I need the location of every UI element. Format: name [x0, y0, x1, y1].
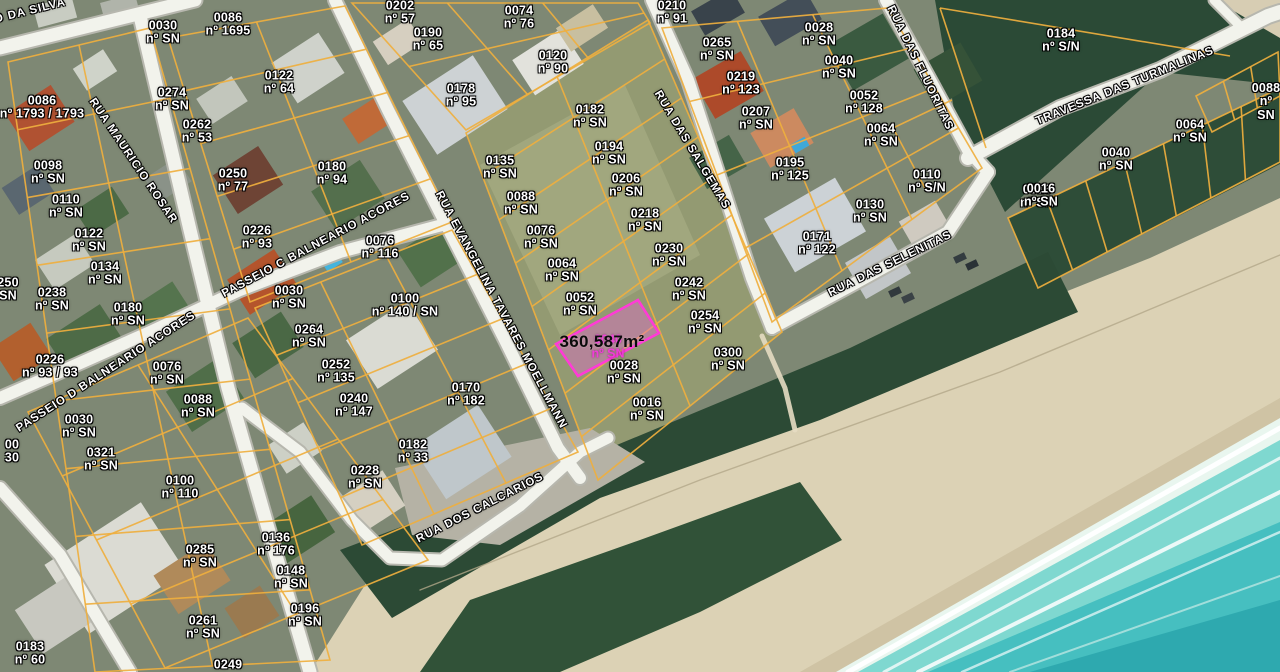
parcel-label: 0086 nº 1793 / 1793 — [0, 95, 84, 122]
parcel-label: 0030 nº SN — [62, 414, 96, 441]
parcel-label: 0135 nº SN — [483, 155, 517, 182]
parcel-label: 0196 nº SN — [288, 603, 322, 630]
parcel-label: 0180 nº SN — [111, 302, 145, 329]
parcel-label: 0134 nº SN — [88, 261, 122, 288]
parcel-label: 0238 nº SN — [35, 287, 69, 314]
parcel-label: 0016 nº SN — [1024, 183, 1058, 210]
parcel-label: 0052 nº 128 — [845, 90, 883, 117]
parcel-label: 0252 nº 135 — [317, 359, 355, 386]
parcel-label: 0264 nº SN — [292, 324, 326, 351]
parcel-label: 0122 nº SN — [72, 228, 106, 255]
street-label: RUA MAURICIO ROSAR — [86, 96, 179, 226]
parcel-label: 0016 nº SN — [630, 397, 664, 424]
parcel-label: 0195 nº 125 — [771, 157, 809, 184]
parcel-label: 0100 nº 140 / SN — [372, 293, 439, 320]
parcel-label: 0240 nº 147 — [335, 393, 373, 420]
parcel-label: 0184 nº S/N — [1042, 28, 1080, 55]
parcel-label: 0180 nº 94 — [317, 161, 348, 188]
parcel-label: 250 SN — [0, 277, 19, 304]
street-label: TRAVESSA DAS TURMALINAS — [1034, 45, 1216, 128]
parcel-label: 0028 nº SN — [607, 360, 641, 387]
parcel-label: 0206 nº SN — [609, 173, 643, 200]
parcel-label: 0254 nº SN — [688, 310, 722, 337]
parcel-label: 0074 nº 76 — [504, 5, 535, 32]
parcel-label: 0226 nº 93 / 93 — [22, 354, 78, 381]
parcel-label: 0098 nº SN — [31, 160, 65, 187]
parcel-label: 0028 nº SN — [802, 22, 836, 49]
area-measurement-label: 360,587m² — [560, 332, 645, 352]
parcel-label: 0228 nº SN — [348, 465, 382, 492]
parcel-label: 0122 nº 64 — [264, 70, 295, 97]
parcel-label: 0076 nº SN — [524, 225, 558, 252]
parcel-label: 0086 nº 1695 — [206, 12, 251, 39]
parcel-label: 0040 nº SN — [822, 55, 856, 82]
parcel-label: 0088 nº SN — [504, 191, 538, 218]
parcel-label: 0170 nº 182 — [447, 382, 485, 409]
parcel-label: 0064 nº SN — [864, 123, 898, 150]
parcel-label: 0262 nº 53 — [182, 119, 213, 146]
parcel-label: 0030 nº SN — [272, 285, 306, 312]
street-label: RUA DAS SALGEMAS — [652, 88, 733, 211]
parcel-label: 0190 nº 65 — [413, 27, 444, 54]
parcel-label: 0300 nº SN — [711, 347, 745, 374]
parcel-label: 0250 nº 77 — [218, 168, 249, 195]
parcel-label: 0076 nº SN — [150, 361, 184, 388]
parcel-label: 0182 nº SN — [573, 104, 607, 131]
parcel-label: 0219 nº 123 — [722, 71, 760, 98]
street-label: O DA SILVA — [0, 0, 67, 26]
parcel-label: 0210 nº 91 — [657, 0, 688, 26]
parcel-label: 0285 nº SN — [183, 544, 217, 571]
map-labels-layer: 0040 nº SN 360,587m² 0030 nº SN0086 nº 1… — [0, 0, 1280, 672]
parcel-label: 0064 nº SN — [545, 258, 579, 285]
parcel-label: 0182 nº 33 — [398, 439, 429, 466]
parcel-label: 0274 nº SN — [155, 87, 189, 114]
parcel-label: 0178 nº 95 — [446, 83, 477, 110]
parcel-label: 0076 nº 116 — [361, 235, 398, 262]
parcel-label: 0088 nº SN — [181, 394, 215, 421]
parcel-label: 0218 nº SN — [628, 208, 662, 235]
parcel-label: 0321 nº SN — [84, 447, 118, 474]
parcel-label: 0265 nº SN — [700, 37, 734, 64]
parcel-label: 00 30 — [5, 439, 19, 466]
parcel-label: 0120 nº 90 — [538, 50, 569, 77]
parcel-label: 0171 nº 122 — [798, 231, 836, 258]
parcel-label: 0242 nº SN — [672, 277, 706, 304]
parcel-label: 0183 nº 60 — [15, 641, 46, 668]
parcel-label: 0088 nº SN — [1252, 82, 1280, 122]
parcel-label: 0202 nº 57 — [385, 0, 416, 26]
parcel-label: 0052 nº SN — [563, 292, 597, 319]
parcel-label: 0030 nº SN — [146, 20, 180, 47]
parcel-label: 0148 nº SN — [274, 565, 308, 592]
map-canvas[interactable]: 0040 nº SN 360,587m² 0030 nº SN0086 nº 1… — [0, 0, 1280, 672]
parcel-label: 0261 nº SN — [186, 615, 220, 642]
street-label: RUA DOS CALCARIOS — [414, 471, 545, 546]
parcel-label: 0230 nº SN — [652, 243, 686, 270]
parcel-label: 0110 nº S/N — [908, 169, 946, 196]
parcel-label: 0040 nº SN — [1099, 147, 1133, 174]
parcel-label: 0249 — [214, 658, 243, 671]
parcel-label: 0130 nº SN — [853, 199, 887, 226]
parcel-label: 0136 nº 176 — [257, 532, 295, 559]
street-label: RUA DAS SELENITAS — [826, 229, 953, 299]
parcel-label: 0226 nº 93 — [242, 225, 273, 252]
parcel-label: 0207 nº SN — [739, 106, 773, 133]
parcel-label: 0194 nº SN — [592, 141, 626, 168]
street-label: RUA DAS FLUORITAS — [885, 4, 956, 132]
parcel-label: 0100 nº 110 — [161, 475, 198, 502]
parcel-label: 0110 nº SN — [49, 194, 83, 221]
parcel-label: 0064 nº SN — [1173, 119, 1207, 146]
